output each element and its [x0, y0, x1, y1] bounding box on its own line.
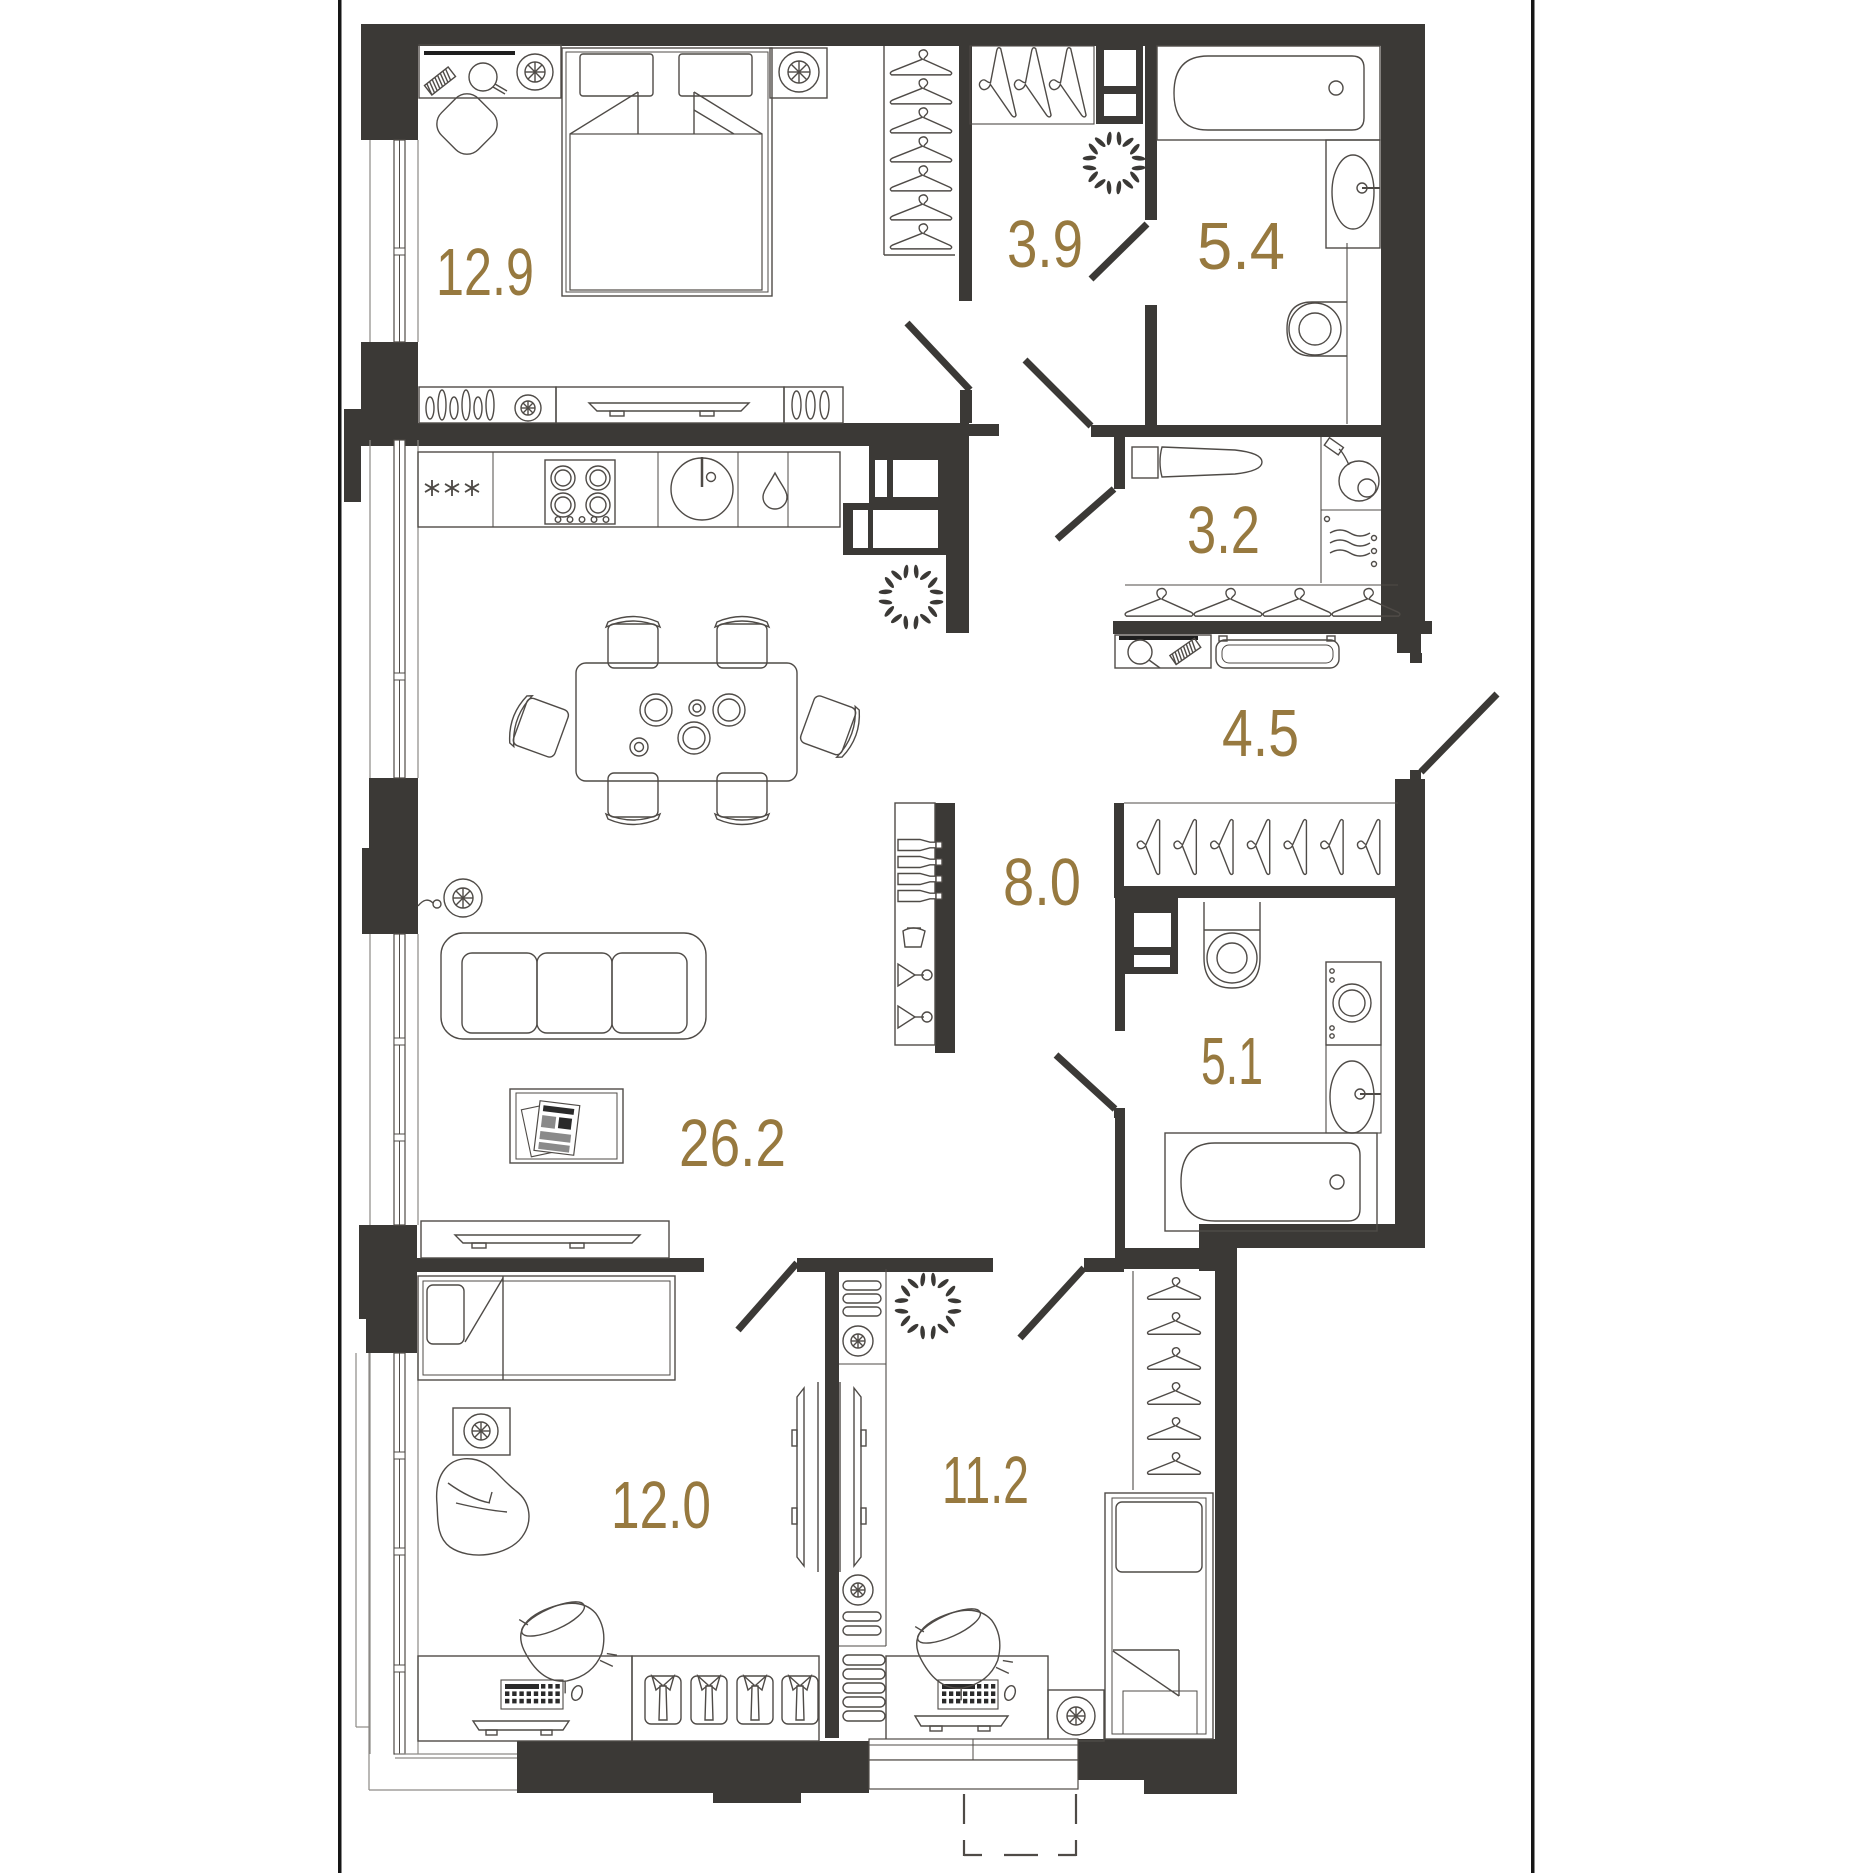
svg-text:5.4: 5.4	[1197, 209, 1285, 284]
svg-text:26.2: 26.2	[679, 1106, 786, 1181]
svg-text:12.9: 12.9	[436, 235, 534, 310]
svg-text:5.1: 5.1	[1201, 1024, 1263, 1099]
svg-text:4.5: 4.5	[1222, 696, 1299, 771]
svg-text:11.2: 11.2	[942, 1443, 1029, 1518]
svg-text:3.2: 3.2	[1187, 493, 1260, 568]
svg-text:8.0: 8.0	[1003, 845, 1081, 920]
svg-text:3.9: 3.9	[1007, 207, 1083, 282]
svg-text:12.0: 12.0	[611, 1468, 711, 1543]
